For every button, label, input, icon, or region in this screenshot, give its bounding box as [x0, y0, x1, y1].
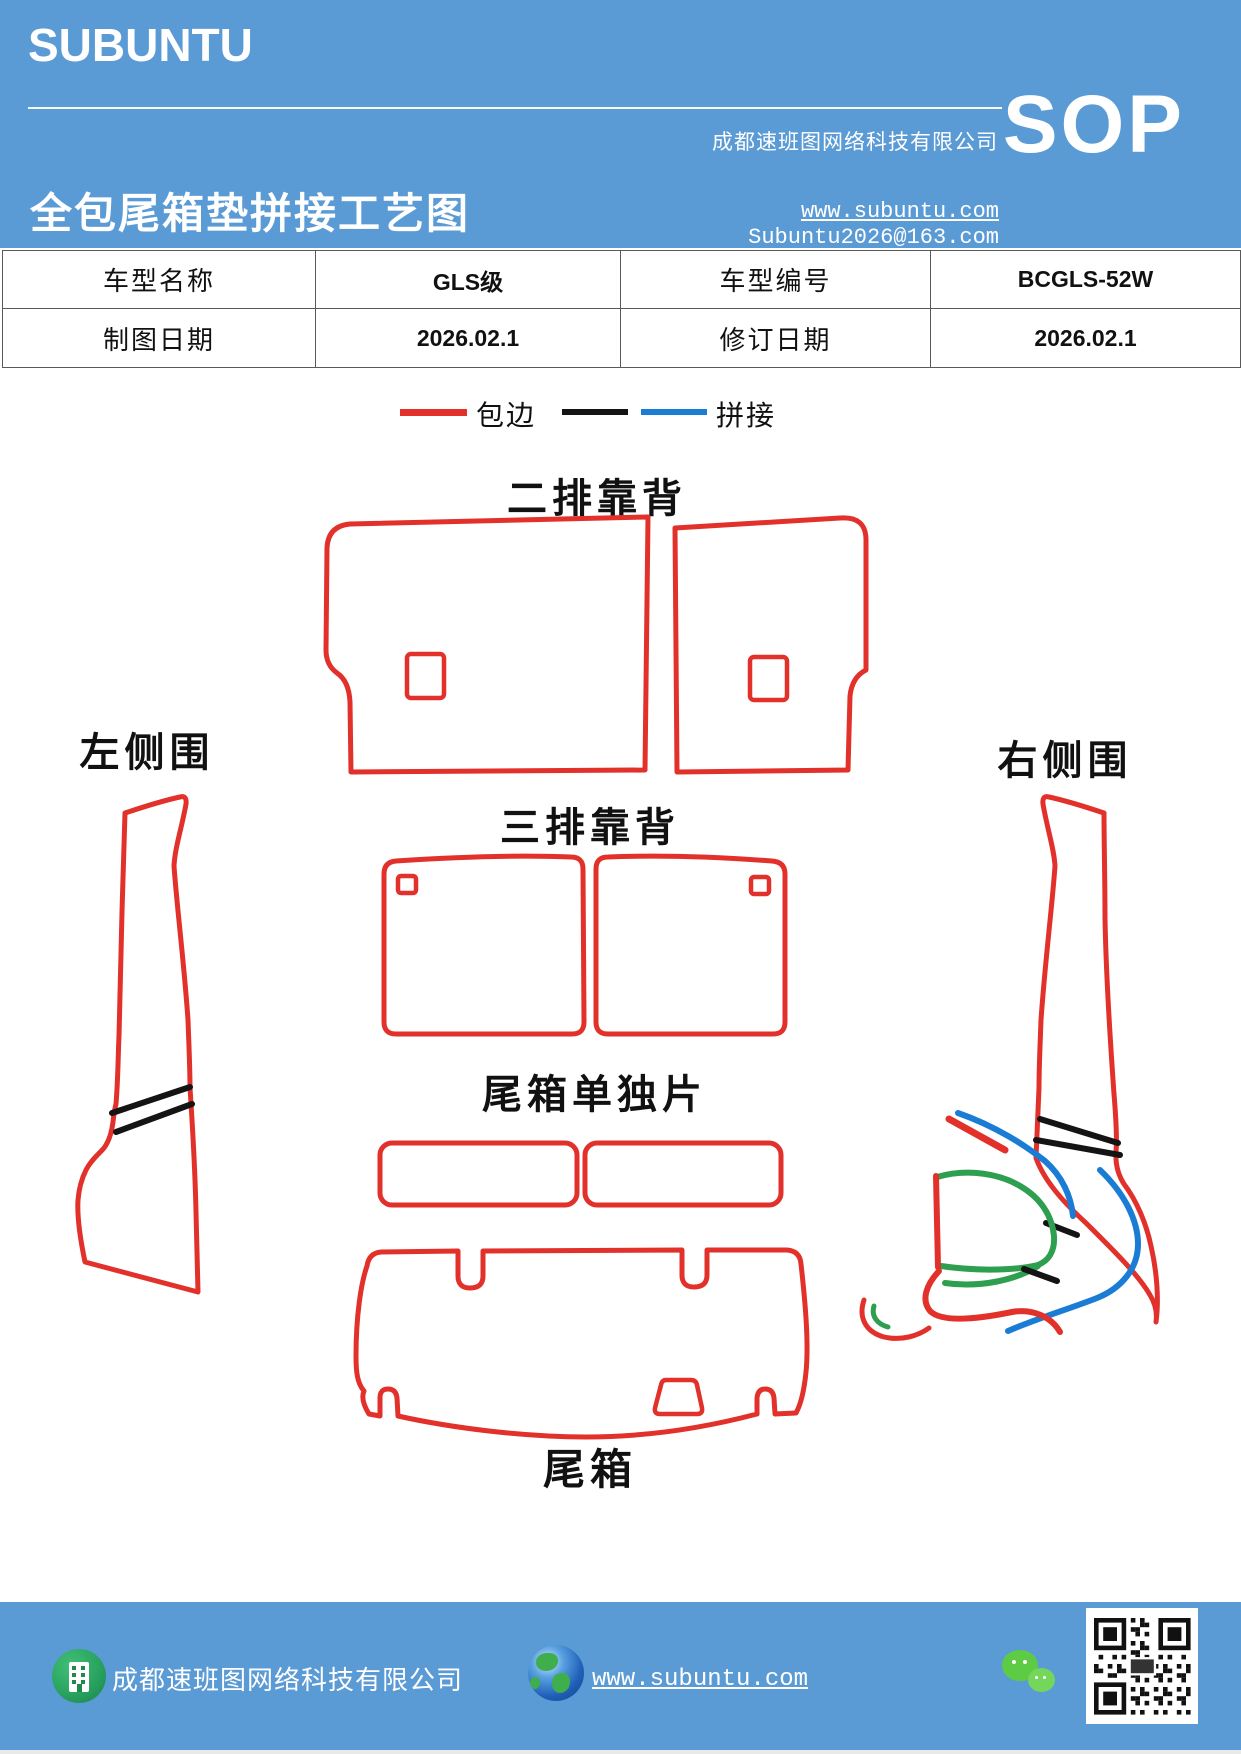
second-row-left-piece-outline	[326, 517, 648, 772]
detail-edge-red-vertical	[936, 1176, 938, 1267]
third-row-right-piece-hole	[751, 877, 769, 894]
right-side-splice-line-1	[1040, 1119, 1118, 1143]
trunk-mat-outline	[356, 1250, 807, 1437]
second-row-left-piece-hole	[407, 654, 444, 698]
footer-company-name: 成都速班图网络科技有限公司	[112, 1660, 463, 1697]
trunk-single-strip-left	[380, 1143, 577, 1205]
third-row-right-piece-outline	[596, 856, 785, 1034]
pattern-diagram	[0, 0, 1241, 1754]
company-building-icon	[52, 1649, 106, 1703]
trunk-single-strip-right	[585, 1143, 781, 1205]
wechat-icon	[1002, 1648, 1064, 1702]
detail-splice-green-hook-inner	[873, 1306, 888, 1327]
detail-edge-red-diagonal	[949, 1119, 1005, 1150]
detail-splice-blue-upper	[958, 1113, 1073, 1216]
building-glyph	[69, 1662, 89, 1692]
qr-code	[1086, 1608, 1198, 1724]
qr-code-pattern	[1086, 1608, 1198, 1724]
detail-splice-black-tick-2	[1024, 1269, 1057, 1281]
page-bottom-edge	[0, 1750, 1241, 1754]
footer-website-link[interactable]: www.subuntu.com	[592, 1666, 808, 1693]
third-row-left-piece-hole	[398, 876, 416, 893]
trunk-mat-trapezoid-hole	[655, 1380, 702, 1414]
second-row-right-piece-hole	[750, 657, 787, 700]
sop-document-page: SUBUNTU 全包尾箱垫拼接工艺图 成都速班图网络科技有限公司 www.sub…	[0, 0, 1241, 1754]
left-side-piece-outline	[78, 797, 198, 1292]
second-row-right-piece-outline	[675, 518, 866, 772]
globe-icon	[528, 1645, 584, 1701]
detail-splice-green-hook	[937, 1173, 1054, 1270]
